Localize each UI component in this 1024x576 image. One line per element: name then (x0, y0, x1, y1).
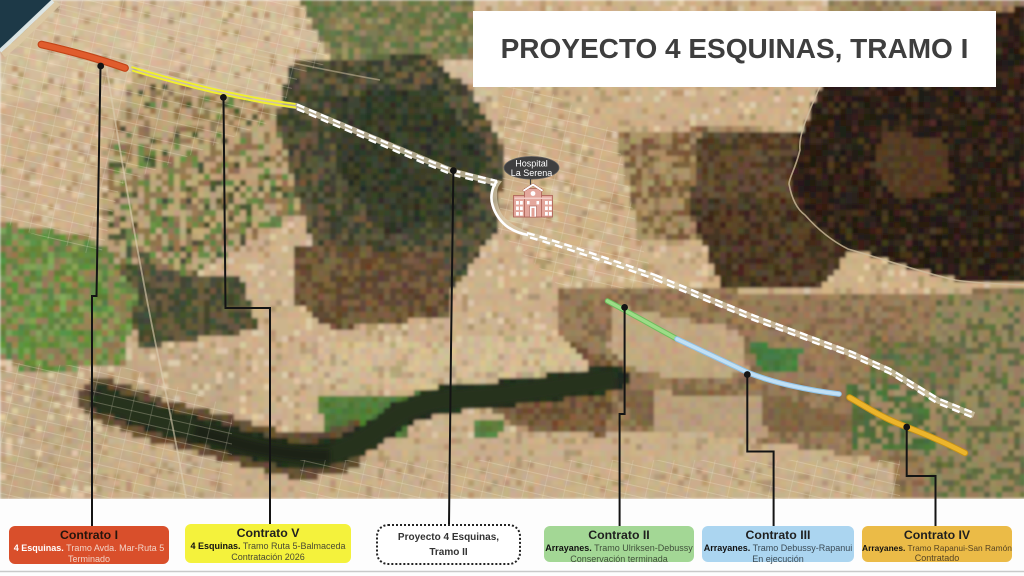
svg-text:La Serena: La Serena (511, 168, 553, 178)
svg-text:Hospital: Hospital (515, 159, 548, 169)
